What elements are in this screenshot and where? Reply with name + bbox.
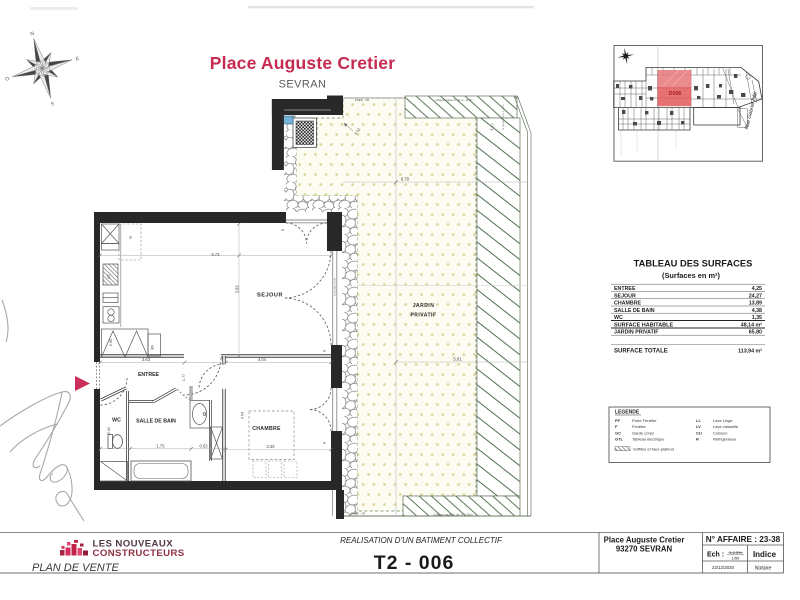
- svg-text:TABLEAU DES SURFACES: TABLEAU DES SURFACES: [634, 259, 753, 269]
- svg-text:1.75: 1.75: [157, 443, 166, 448]
- svg-text:seuil dep 22cm: seuil dep 22cm: [333, 277, 337, 296]
- svg-text:LL: LL: [696, 418, 701, 423]
- svg-text:3.54: 3.54: [241, 412, 245, 419]
- svg-text:Cuisson: Cuisson: [713, 430, 727, 435]
- svg-text:LEGENDE: LEGENDE: [615, 410, 640, 416]
- svg-text:4,25: 4,25: [752, 286, 762, 292]
- svg-text:Indice: Indice: [753, 550, 777, 559]
- svg-text:WC: WC: [614, 315, 623, 321]
- svg-text:R: R: [128, 236, 133, 239]
- svg-text:Lave vaisselle: Lave vaisselle: [713, 424, 739, 429]
- svg-text:1,35: 1,35: [752, 315, 762, 321]
- svg-text:R: R: [696, 437, 699, 442]
- svg-text:Notaire: Notaire: [755, 565, 772, 571]
- svg-text:13,89: 13,89: [749, 301, 762, 307]
- svg-text:Garde corps: Garde corps: [632, 430, 654, 435]
- svg-text:Porte Fenêtre: Porte Fenêtre: [632, 418, 657, 423]
- svg-text:JARDIN PRIVATIF: JARDIN PRIVATIF: [614, 330, 659, 336]
- svg-text:ENTREE: ENTREE: [614, 286, 636, 292]
- svg-text:Tableau électrique: Tableau électrique: [632, 437, 665, 442]
- svg-text:24,27: 24,27: [749, 293, 762, 299]
- svg-text:LV: LV: [696, 424, 701, 429]
- svg-text:PLAN DE VENTE: PLAN DE VENTE: [32, 562, 119, 574]
- svg-text:Place Auguste Cretier: Place Auguste Cretier: [604, 536, 685, 545]
- svg-text:Grillage rigide ht. de +/- 1.2: Grillage rigide ht. de +/- 1.20m: [434, 512, 474, 516]
- svg-text:Place Auguste Cretier: Place Auguste Cretier: [210, 53, 395, 73]
- svg-text:CU: CU: [696, 430, 702, 435]
- svg-text:65,80: 65,80: [749, 330, 762, 336]
- svg-text:4.04: 4.04: [258, 357, 267, 362]
- svg-text:T2 - 006: T2 - 006: [374, 552, 455, 574]
- svg-text:SURFACE HABITABLE: SURFACE HABITABLE: [614, 322, 674, 328]
- svg-text:CHAMBRE: CHAMBRE: [252, 426, 281, 432]
- svg-text:Fenêtre: Fenêtre: [632, 424, 647, 429]
- svg-text:(Surfaces en m²): (Surfaces en m²): [662, 271, 720, 280]
- svg-text:LV: LV: [107, 275, 112, 280]
- svg-text:MB: MB: [150, 345, 154, 350]
- svg-text:ENTREE: ENTREE: [138, 372, 160, 378]
- svg-text:3.39: 3.39: [267, 444, 276, 449]
- svg-text:B: B: [324, 349, 326, 353]
- svg-text:D006: D006: [669, 91, 682, 97]
- svg-text:ht garde corps 1.20m: ht garde corps 1.20m: [501, 104, 505, 130]
- svg-text:0.65: 0.65: [109, 339, 113, 346]
- svg-text:N° AFFAIRE : 23-38: N° AFFAIRE : 23-38: [706, 535, 781, 544]
- svg-text:Ech :: Ech :: [707, 552, 724, 559]
- svg-text:REALISATION D'UN BATIMENT COLL: REALISATION D'UN BATIMENT COLLECTIF: [340, 536, 503, 545]
- svg-text:5.01: 5.01: [453, 356, 462, 361]
- svg-text:JARDIN: JARDIN: [413, 303, 435, 309]
- svg-text:PRIVATIF: PRIVATIF: [410, 313, 436, 319]
- svg-text:6.72: 6.72: [212, 252, 221, 257]
- svg-text:PREE - VR: PREE - VR: [351, 512, 365, 516]
- svg-text:93270 SEVRAN: 93270 SEVRAN: [616, 545, 673, 554]
- svg-text:SALLE DE BAIN: SALLE DE BAIN: [614, 308, 655, 314]
- svg-text:SEJOUR: SEJOUR: [257, 293, 283, 299]
- svg-text:6.70: 6.70: [401, 176, 410, 181]
- svg-text:WC: WC: [112, 418, 121, 424]
- svg-text:3.83: 3.83: [235, 285, 240, 294]
- svg-text:4,38: 4,38: [752, 308, 762, 314]
- svg-text:Clôture rigide ht. de +/- 11.9: Clôture rigide ht. de +/- 11.97: [435, 98, 473, 102]
- svg-text:22/12/2020: 22/12/2020: [712, 565, 735, 570]
- svg-text:0.91: 0.91: [107, 427, 111, 434]
- svg-text:CONSTRUCTEURS: CONSTRUCTEURS: [93, 548, 185, 559]
- svg-text:PREE - VR: PREE - VR: [355, 98, 369, 102]
- svg-text:GTL: GTL: [615, 437, 624, 442]
- svg-text:113,94 m²: 113,94 m²: [738, 349, 762, 355]
- svg-text:B: B: [324, 441, 326, 445]
- svg-text:SURFACE TOTALE: SURFACE TOTALE: [614, 349, 668, 355]
- svg-text:PF: PF: [615, 418, 621, 423]
- svg-text:Réfrigérateur: Réfrigérateur: [713, 437, 737, 442]
- svg-text:Soffites et faux-plafond: Soffites et faux-plafond: [633, 447, 674, 452]
- svg-text:1.77: 1.77: [182, 374, 186, 381]
- svg-text:SEJOUR: SEJOUR: [614, 293, 636, 299]
- svg-text:SEVRAN: SEVRAN: [279, 79, 327, 91]
- svg-text:1/50: 1/50: [732, 555, 741, 560]
- svg-text:SALLE DE BAIN: SALLE DE BAIN: [136, 419, 176, 425]
- svg-text:GC: GC: [615, 430, 621, 435]
- svg-text:Lave Linge: Lave Linge: [713, 418, 733, 423]
- svg-text:48,14 m²: 48,14 m²: [741, 322, 762, 328]
- svg-text:2.63: 2.63: [142, 357, 151, 362]
- svg-text:CHAMBRE: CHAMBRE: [614, 301, 642, 307]
- svg-text:0.63: 0.63: [200, 443, 209, 448]
